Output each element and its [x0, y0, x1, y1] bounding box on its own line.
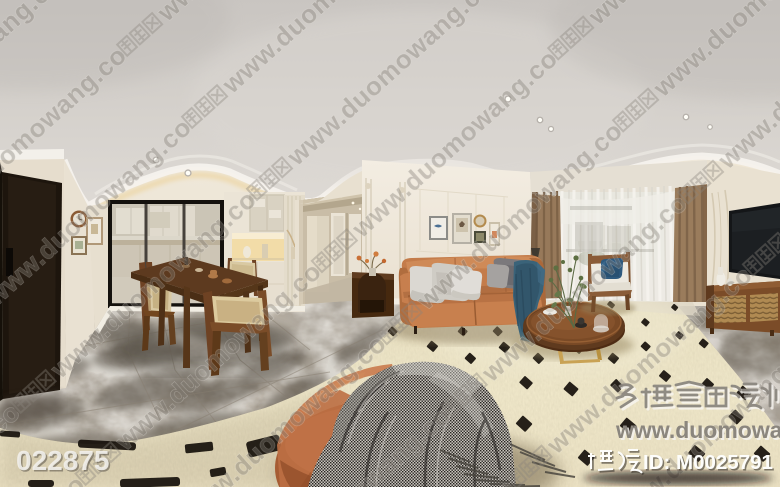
- svg-text:www.duomowang: www.duomowang: [615, 417, 780, 443]
- svg-text:022875: 022875: [16, 445, 109, 476]
- svg-text:ID: M0025791: ID: M0025791: [643, 451, 773, 474]
